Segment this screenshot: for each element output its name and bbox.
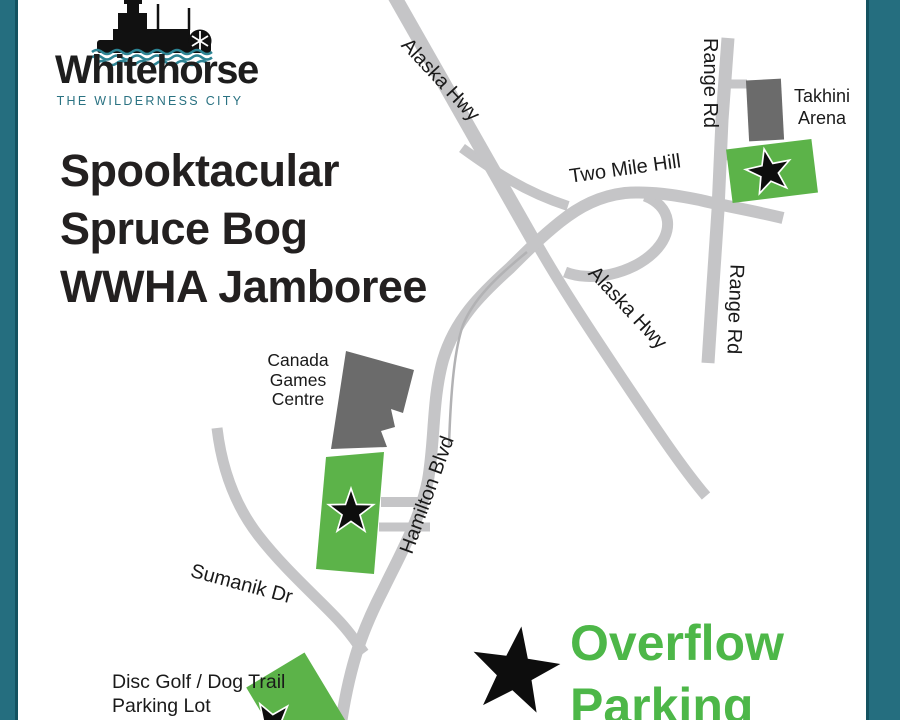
title-line-2: Spruce Bog xyxy=(60,200,427,258)
range-rd-bottom-label: Range Rd xyxy=(722,264,747,355)
title-line-3: WWHA Jamboree xyxy=(60,258,427,316)
disc-golf-lot-label: Disc Golf / Dog Trail Parking Lot xyxy=(112,670,285,718)
logo-tagline: THE WILDERNESS CITY xyxy=(55,94,245,108)
two-mile-hill-label: Two Mile Hill xyxy=(568,150,682,187)
legend-overflow-parking-label: Overflow Parking xyxy=(570,612,784,720)
logo-wordmark: Whitehorse xyxy=(55,48,245,93)
alaska-hwy-north-label: Alaska Hwy xyxy=(397,34,484,125)
takhini-arena-label: Takhini Arena xyxy=(772,85,872,129)
canada-games-centre-label: Canada Games Centre xyxy=(248,351,348,410)
overflow-parking-star-icon xyxy=(466,620,564,715)
event-parking-map-flyer: Alaska Hwy Alaska Hwy Two Mile Hill Rang… xyxy=(0,0,900,720)
page-title: Spooktacular Spruce Bog WWHA Jamboree xyxy=(60,142,427,316)
range-rd-top-label: Range Rd xyxy=(699,38,721,128)
title-line-1: Spooktacular xyxy=(60,142,427,200)
